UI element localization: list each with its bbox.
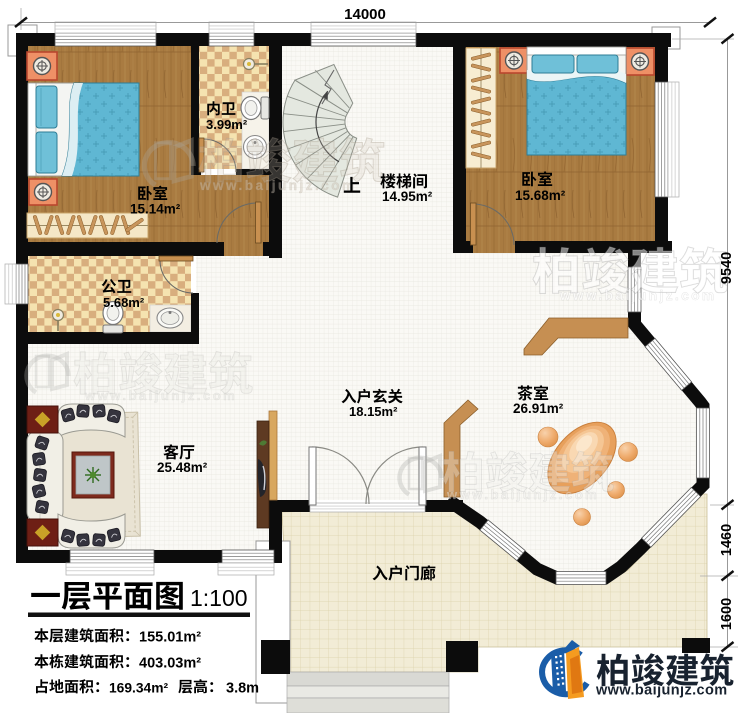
svg-text:www.baijunjz.com: www.baijunjz.com (84, 388, 237, 403)
svg-text:26.91m²: 26.91m² (513, 401, 564, 416)
svg-text:1600: 1600 (719, 598, 735, 630)
svg-text:15.68m²: 15.68m² (515, 188, 566, 203)
svg-text:1460: 1460 (719, 524, 735, 556)
svg-text:www.baijunjz.com: www.baijunjz.com (199, 178, 357, 193)
svg-text:3.99m²: 3.99m² (206, 117, 248, 132)
svg-text:www.baijunjz.com: www.baijunjz.com (446, 487, 599, 502)
svg-text:18.15m²: 18.15m² (349, 404, 398, 419)
svg-text:5.68m²: 5.68m² (103, 295, 145, 310)
svg-text:15.14m²: 15.14m² (130, 202, 181, 217)
svg-text:14000: 14000 (344, 6, 386, 23)
svg-text:www.baijunjz.com: www.baijunjz.com (559, 288, 717, 303)
svg-text:www.baijunjz.com: www.baijunjz.com (595, 683, 728, 699)
svg-text:403.03m²: 403.03m² (139, 656, 201, 672)
svg-text:25.48m²: 25.48m² (157, 460, 208, 475)
svg-text:155.01m²: 155.01m² (139, 630, 201, 646)
svg-text:169.34m²: 169.34m² (109, 681, 168, 696)
svg-text:14.95m²: 14.95m² (382, 189, 433, 204)
svg-text:9540: 9540 (719, 252, 735, 284)
svg-text:3.8m: 3.8m (226, 681, 259, 697)
svg-text:1:100: 1:100 (190, 585, 248, 611)
